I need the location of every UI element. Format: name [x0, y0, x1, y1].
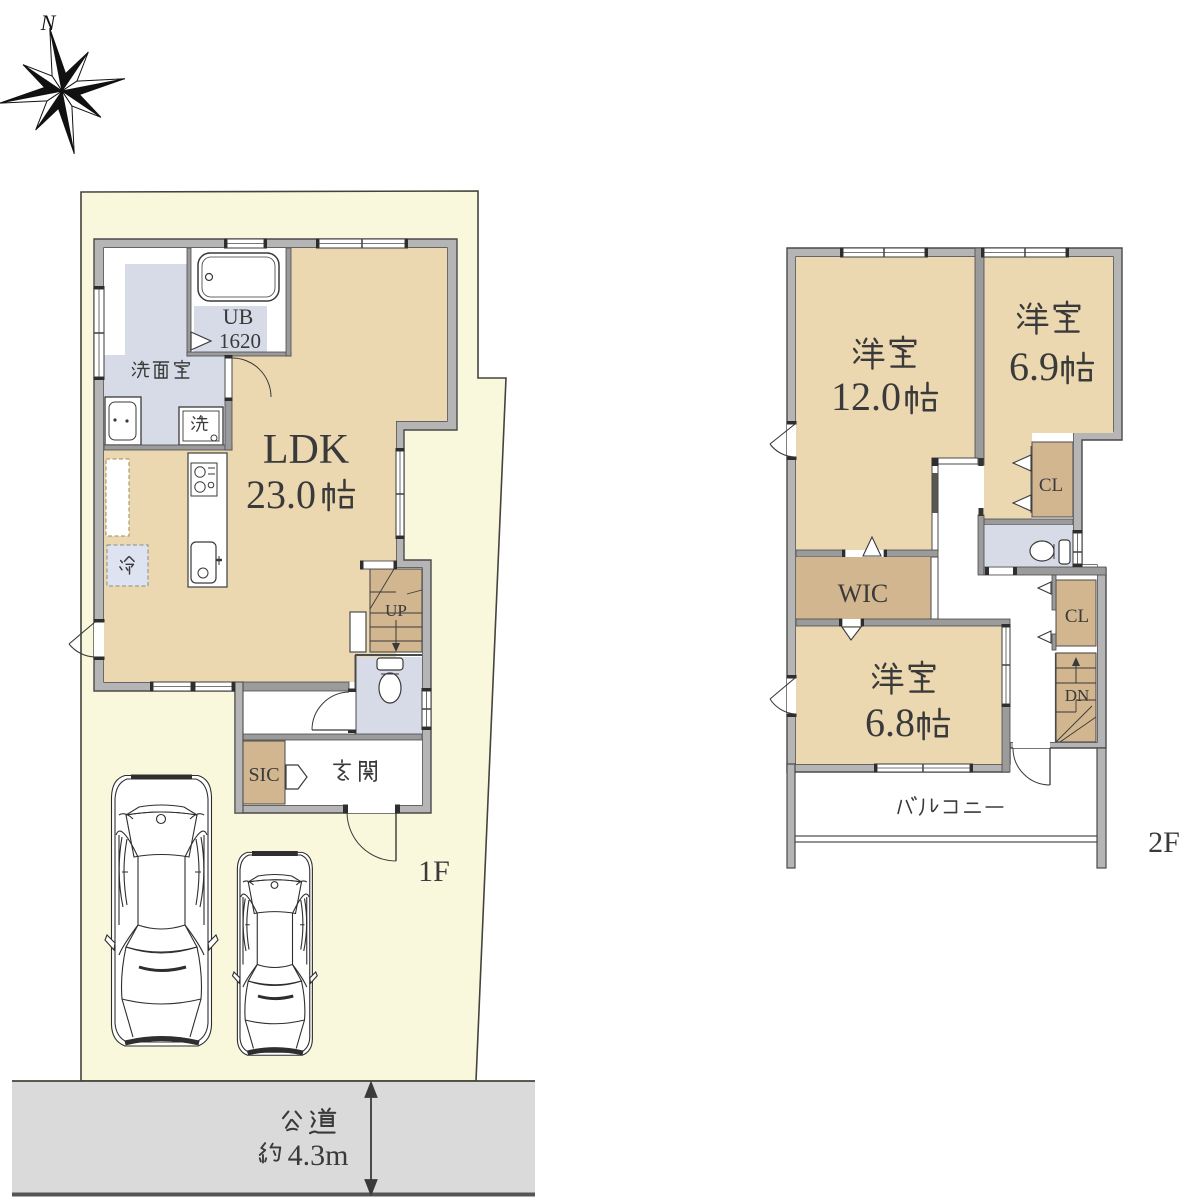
svg-text:UB: UB — [223, 304, 254, 329]
svg-text:23.0: 23.0 — [246, 472, 316, 517]
svg-text:12.0: 12.0 — [831, 374, 901, 419]
svg-text:N: N — [40, 10, 57, 35]
svg-text:CL: CL — [1039, 475, 1063, 496]
svg-text:UP: UP — [385, 601, 407, 620]
svg-text:1F: 1F — [418, 855, 450, 888]
svg-text:2F: 2F — [1148, 826, 1180, 859]
svg-text:6.9: 6.9 — [1009, 344, 1059, 389]
svg-text:DN: DN — [1065, 686, 1090, 705]
svg-text:6.8: 6.8 — [865, 700, 915, 745]
svg-text:LDK: LDK — [263, 427, 349, 473]
svg-text:1620: 1620 — [219, 329, 261, 353]
svg-text:SIC: SIC — [248, 764, 279, 786]
svg-text:CL: CL — [1065, 606, 1089, 627]
svg-text:4.3m: 4.3m — [288, 1139, 349, 1172]
svg-text:WIC: WIC — [838, 579, 889, 608]
